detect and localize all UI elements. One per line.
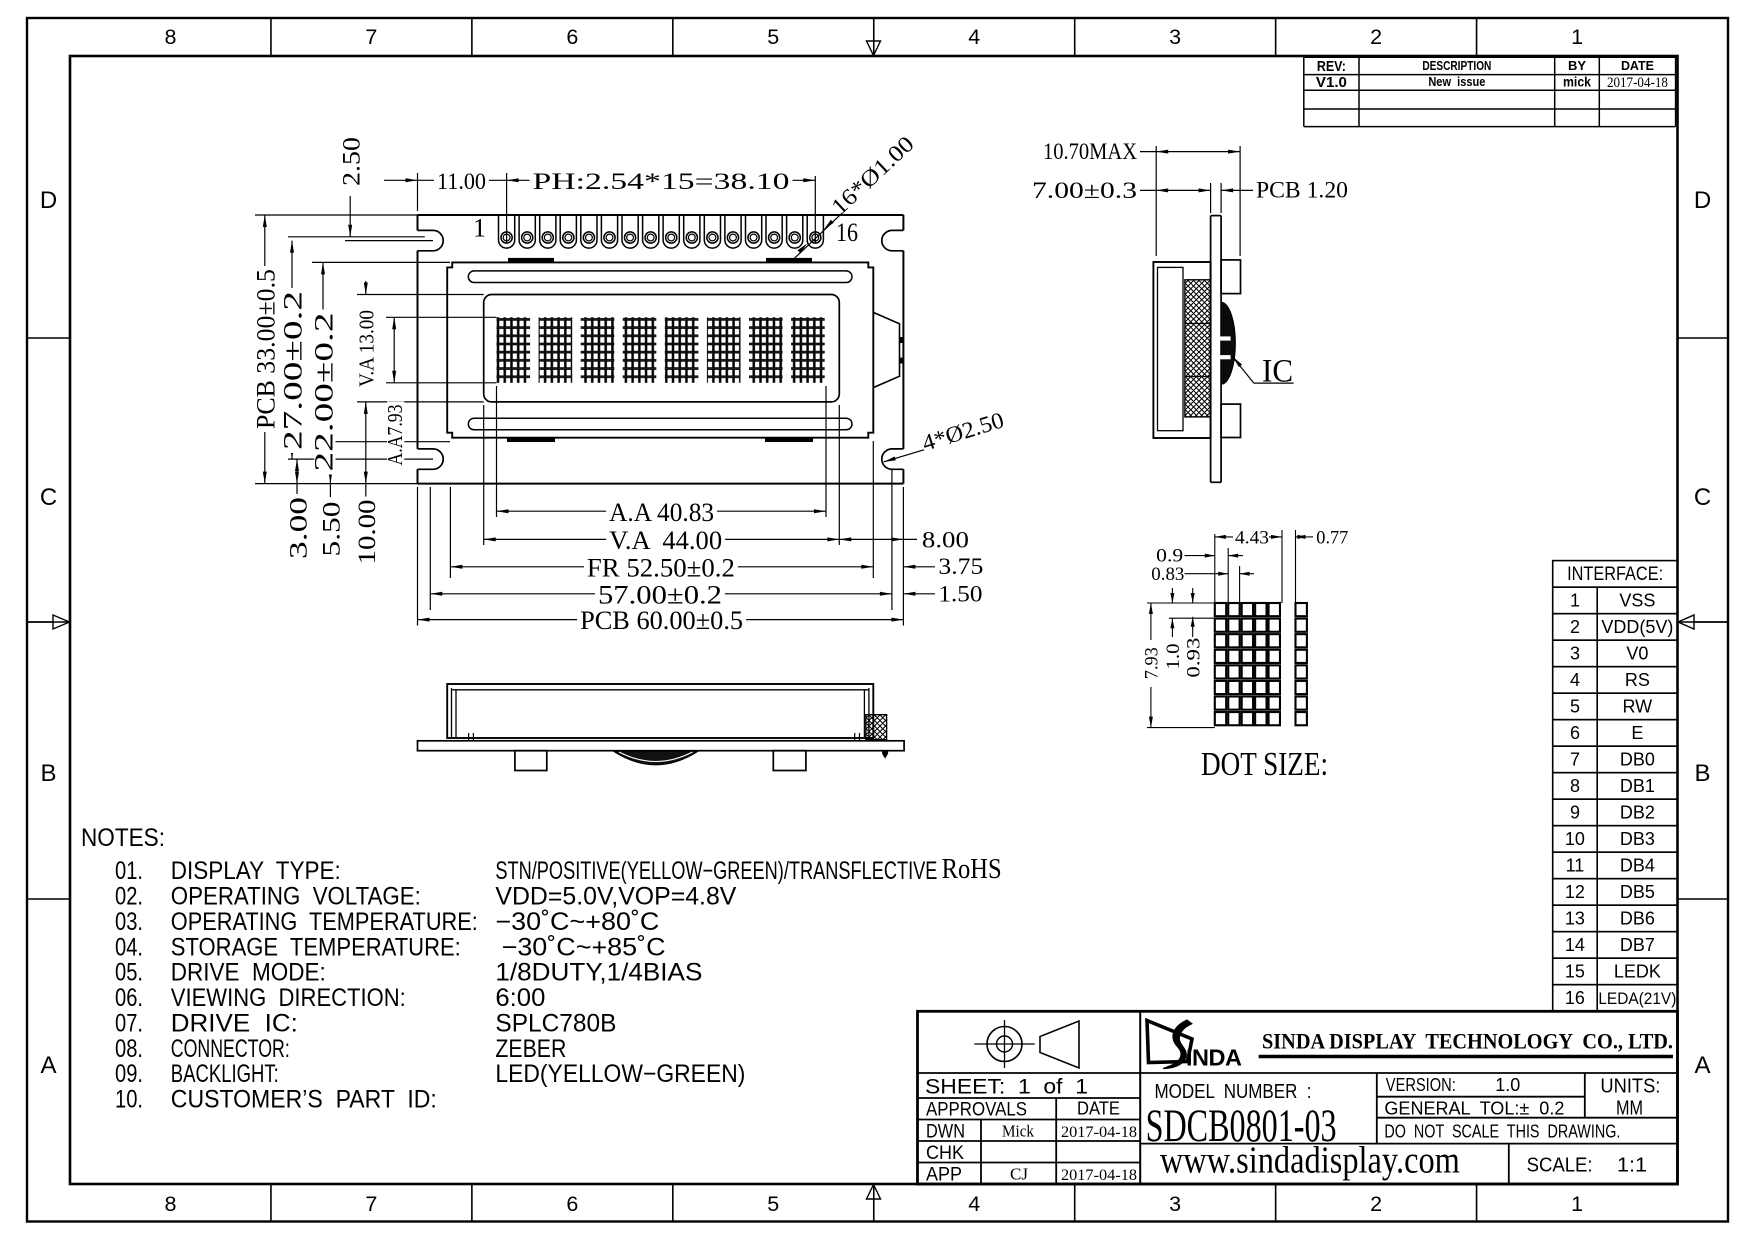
svg-text:DISPLAY TYPE:: DISPLAY TYPE: xyxy=(171,857,341,885)
svg-text:VDD=5.0V,VOP=4.8V: VDD=5.0V,VOP=4.8V xyxy=(495,883,736,911)
svg-text:SINDA DISPLAY TECHNOLOGY CO.: SINDA DISPLAY TECHNOLOGY CO., LTD. xyxy=(1262,1029,1673,1054)
svg-text:PCB 60.00±0.5: PCB 60.00±0.5 xyxy=(580,606,743,635)
svg-text:ZEBER: ZEBER xyxy=(495,1035,566,1063)
svg-text:2017-04-18: 2017-04-18 xyxy=(1061,1167,1137,1184)
svg-text:STORAGE TEMPERATURE:: STORAGE TEMPERATURE: xyxy=(171,933,461,961)
svg-text:DB6: DB6 xyxy=(1620,909,1655,929)
svg-text:7.00±0.3: 7.00±0.3 xyxy=(1032,178,1137,203)
svg-text:6: 6 xyxy=(566,25,578,49)
svg-text:DB4: DB4 xyxy=(1620,856,1655,876)
svg-text:NOTES:: NOTES: xyxy=(81,824,165,852)
svg-text:1.0: 1.0 xyxy=(1495,1074,1520,1095)
svg-text:Mick: Mick xyxy=(1002,1122,1034,1141)
svg-text:LED(YELLOW−GREEN): LED(YELLOW−GREEN) xyxy=(495,1060,745,1088)
svg-text:REV:: REV: xyxy=(1317,58,1346,75)
svg-text:1.50: 1.50 xyxy=(938,582,982,607)
svg-text:INDA: INDA xyxy=(1186,1045,1242,1071)
svg-text:11.00: 11.00 xyxy=(437,169,486,194)
svg-text:0.93: 0.93 xyxy=(1184,638,1205,678)
svg-text:13: 13 xyxy=(1565,909,1585,929)
svg-text:27.00±0.2: 27.00±0.2 xyxy=(279,291,308,450)
svg-text:DB1: DB1 xyxy=(1620,776,1655,796)
svg-text:mick: mick xyxy=(1563,74,1591,90)
svg-text:RW: RW xyxy=(1623,697,1653,717)
svg-text:VERSION:: VERSION: xyxy=(1386,1074,1456,1095)
svg-text:4.43: 4.43 xyxy=(1235,528,1269,549)
svg-text:2: 2 xyxy=(1570,617,1580,637)
svg-text:10: 10 xyxy=(1565,829,1585,849)
svg-text:1: 1 xyxy=(1570,591,1580,611)
svg-text:LEDA(21V): LEDA(21V) xyxy=(1598,989,1676,1008)
svg-text:3.75: 3.75 xyxy=(938,554,983,579)
svg-text:DESCRIPTION: DESCRIPTION xyxy=(1422,58,1491,73)
svg-text:DRIVE IC:: DRIVE IC: xyxy=(171,1009,298,1037)
svg-text:E: E xyxy=(1631,723,1643,743)
svg-text:3.00: 3.00 xyxy=(285,497,312,559)
svg-text:www.sindadisplay.com: www.sindadisplay.com xyxy=(1160,1140,1460,1182)
svg-text:1:1: 1:1 xyxy=(1617,1155,1647,1177)
svg-text:New issue: New issue xyxy=(1428,74,1485,89)
svg-text:6:00: 6:00 xyxy=(495,984,545,1012)
svg-text:07.: 07. xyxy=(115,1009,143,1037)
svg-text:09.: 09. xyxy=(115,1060,143,1088)
svg-text:A.A7.93: A.A7.93 xyxy=(383,405,407,466)
svg-text:INTERFACE:: INTERFACE: xyxy=(1567,564,1663,585)
svg-text:C: C xyxy=(1694,484,1711,511)
svg-text:B: B xyxy=(1694,760,1710,787)
svg-text:15: 15 xyxy=(1565,962,1585,982)
svg-text:10.70MAX: 10.70MAX xyxy=(1043,139,1137,164)
svg-text:3: 3 xyxy=(1169,25,1181,49)
svg-text:2: 2 xyxy=(1370,25,1382,49)
svg-text:0.83: 0.83 xyxy=(1151,564,1184,585)
svg-text:10.: 10. xyxy=(115,1086,143,1114)
svg-text:12: 12 xyxy=(1565,882,1585,902)
svg-text:CHK: CHK xyxy=(926,1143,964,1164)
svg-text:V1.0: V1.0 xyxy=(1316,74,1347,91)
svg-text:8: 8 xyxy=(164,1192,176,1216)
svg-text:02.: 02. xyxy=(115,883,143,911)
svg-text:GENERAL TOL:± 0.2: GENERAL TOL:± 0.2 xyxy=(1384,1098,1564,1119)
svg-text:2: 2 xyxy=(1370,1192,1382,1216)
svg-text:3: 3 xyxy=(1169,1192,1181,1216)
svg-text:10.00: 10.00 xyxy=(354,500,381,565)
svg-text:VDD(5V): VDD(5V) xyxy=(1601,617,1673,637)
svg-text:CJ: CJ xyxy=(1010,1165,1028,1184)
svg-text:V.A 13.00: V.A 13.00 xyxy=(355,310,379,387)
svg-text:1.0: 1.0 xyxy=(1163,644,1184,670)
svg-text:V0: V0 xyxy=(1626,644,1648,664)
svg-text:16: 16 xyxy=(1565,988,1585,1008)
svg-text:14: 14 xyxy=(1565,935,1585,955)
svg-text:A: A xyxy=(40,1052,56,1079)
svg-text:57.00±0.2: 57.00±0.2 xyxy=(598,580,722,609)
svg-text:VSS: VSS xyxy=(1619,591,1655,611)
svg-text:2017-04-18: 2017-04-18 xyxy=(1061,1124,1137,1141)
svg-text:DWN: DWN xyxy=(926,1122,965,1143)
svg-text:4: 4 xyxy=(968,25,980,49)
svg-text:5: 5 xyxy=(1570,697,1580,717)
svg-text:11: 11 xyxy=(1566,856,1585,876)
svg-text:2.50: 2.50 xyxy=(339,137,366,186)
svg-text:22.00±0.2: 22.00±0.2 xyxy=(310,313,339,472)
svg-text:04.: 04. xyxy=(115,933,143,961)
svg-text:1: 1 xyxy=(1571,25,1583,49)
svg-text:C: C xyxy=(40,484,57,511)
svg-text:7: 7 xyxy=(365,25,377,49)
svg-text:SPLC780B: SPLC780B xyxy=(495,1009,616,1037)
svg-text:B: B xyxy=(40,760,56,787)
svg-text:1: 1 xyxy=(1571,1192,1583,1216)
svg-text:A.A 40.83: A.A 40.83 xyxy=(609,498,714,527)
svg-text:6: 6 xyxy=(1570,723,1580,743)
svg-text:DOT SIZE:: DOT SIZE: xyxy=(1201,746,1328,783)
svg-text:2017-04-18: 2017-04-18 xyxy=(1607,75,1668,91)
svg-text:DB3: DB3 xyxy=(1620,829,1655,849)
svg-text:03.: 03. xyxy=(115,908,143,936)
svg-text:05.: 05. xyxy=(115,959,143,987)
svg-text:5: 5 xyxy=(767,1192,779,1216)
svg-text:8.00: 8.00 xyxy=(922,528,969,553)
svg-text:DATE: DATE xyxy=(1077,1099,1120,1119)
svg-text:SCALE:: SCALE: xyxy=(1527,1155,1593,1177)
svg-text:CUSTOMER’S PART ID:: CUSTOMER’S PART ID: xyxy=(171,1086,437,1114)
svg-text:8: 8 xyxy=(1570,776,1580,796)
svg-text:−30˚C~+85˚C: −30˚C~+85˚C xyxy=(502,933,666,961)
svg-text:IC: IC xyxy=(1262,354,1293,390)
svg-text:3: 3 xyxy=(1570,644,1580,664)
svg-text:−30˚C~+80˚C: −30˚C~+80˚C xyxy=(495,908,659,936)
svg-text:RS: RS xyxy=(1625,670,1650,690)
svg-text:5.50: 5.50 xyxy=(319,502,346,557)
svg-text:D: D xyxy=(1694,187,1711,214)
svg-text:7: 7 xyxy=(365,1192,377,1216)
svg-text:9: 9 xyxy=(1570,803,1580,823)
svg-text:PH:2.54*15=38.10: PH:2.54*15=38.10 xyxy=(533,169,790,194)
svg-text:BY: BY xyxy=(1568,58,1586,73)
svg-text:MM: MM xyxy=(1616,1098,1643,1120)
svg-text:DB0: DB0 xyxy=(1620,750,1655,770)
svg-text:DATE: DATE xyxy=(1621,58,1654,73)
svg-text:7: 7 xyxy=(1570,750,1580,770)
svg-text:STN/POSITIVE(YELLOW−GREEN)/TRA: STN/POSITIVE(YELLOW−GREEN)/TRANSFLECTIVE xyxy=(495,857,937,885)
svg-text:OPERATING VOLTAGE:: OPERATING VOLTAGE: xyxy=(171,883,421,911)
svg-text:UNITS:: UNITS: xyxy=(1600,1076,1660,1098)
svg-text:8: 8 xyxy=(164,25,176,49)
svg-text:DRIVE MODE:: DRIVE MODE: xyxy=(171,959,326,987)
svg-text:7.93: 7.93 xyxy=(1142,647,1163,679)
svg-text:A: A xyxy=(1694,1052,1710,1079)
svg-text:DO NOT SCALE THIS DRAWING.: DO NOT SCALE THIS DRAWING. xyxy=(1384,1121,1620,1142)
svg-text:16: 16 xyxy=(836,218,858,247)
svg-text:06.: 06. xyxy=(115,984,143,1012)
svg-text:FR 52.50±0.2: FR 52.50±0.2 xyxy=(587,553,735,582)
svg-text:CONNECTOR:: CONNECTOR: xyxy=(171,1035,290,1063)
svg-text:V.A 44.00: V.A 44.00 xyxy=(609,526,722,555)
svg-text:APPROVALS: APPROVALS xyxy=(926,1100,1027,1121)
svg-text:4: 4 xyxy=(1570,670,1580,690)
svg-text:LEDK: LEDK xyxy=(1614,962,1661,982)
svg-text:08.: 08. xyxy=(115,1035,143,1063)
svg-text:0.77: 0.77 xyxy=(1316,528,1348,549)
svg-text:D: D xyxy=(40,187,57,214)
svg-text:DB7: DB7 xyxy=(1620,935,1655,955)
svg-text:VIEWING DIRECTION:: VIEWING DIRECTION: xyxy=(171,984,406,1012)
svg-text:5: 5 xyxy=(767,25,779,49)
svg-text:BACKLIGHT:: BACKLIGHT: xyxy=(171,1060,279,1088)
svg-text:01.: 01. xyxy=(115,857,143,885)
svg-text:4: 4 xyxy=(968,1192,980,1216)
svg-text:RoHS: RoHS xyxy=(942,854,1002,885)
svg-text:SHEET: 1 of 1: SHEET: 1 of 1 xyxy=(925,1076,1088,1099)
svg-text:PCB 1.20: PCB 1.20 xyxy=(1256,178,1348,203)
svg-text:1/8DUTY,1/4BIAS: 1/8DUTY,1/4BIAS xyxy=(495,959,702,987)
svg-text:1: 1 xyxy=(473,214,486,243)
svg-text:PCB 33.00±0.5: PCB 33.00±0.5 xyxy=(251,269,280,429)
svg-text:DB2: DB2 xyxy=(1620,803,1655,823)
svg-text:APP: APP xyxy=(926,1165,962,1186)
svg-text:DB5: DB5 xyxy=(1620,882,1655,902)
svg-text:6: 6 xyxy=(566,1192,578,1216)
svg-text:OPERATING TEMPERATURE:: OPERATING TEMPERATURE: xyxy=(171,908,478,936)
